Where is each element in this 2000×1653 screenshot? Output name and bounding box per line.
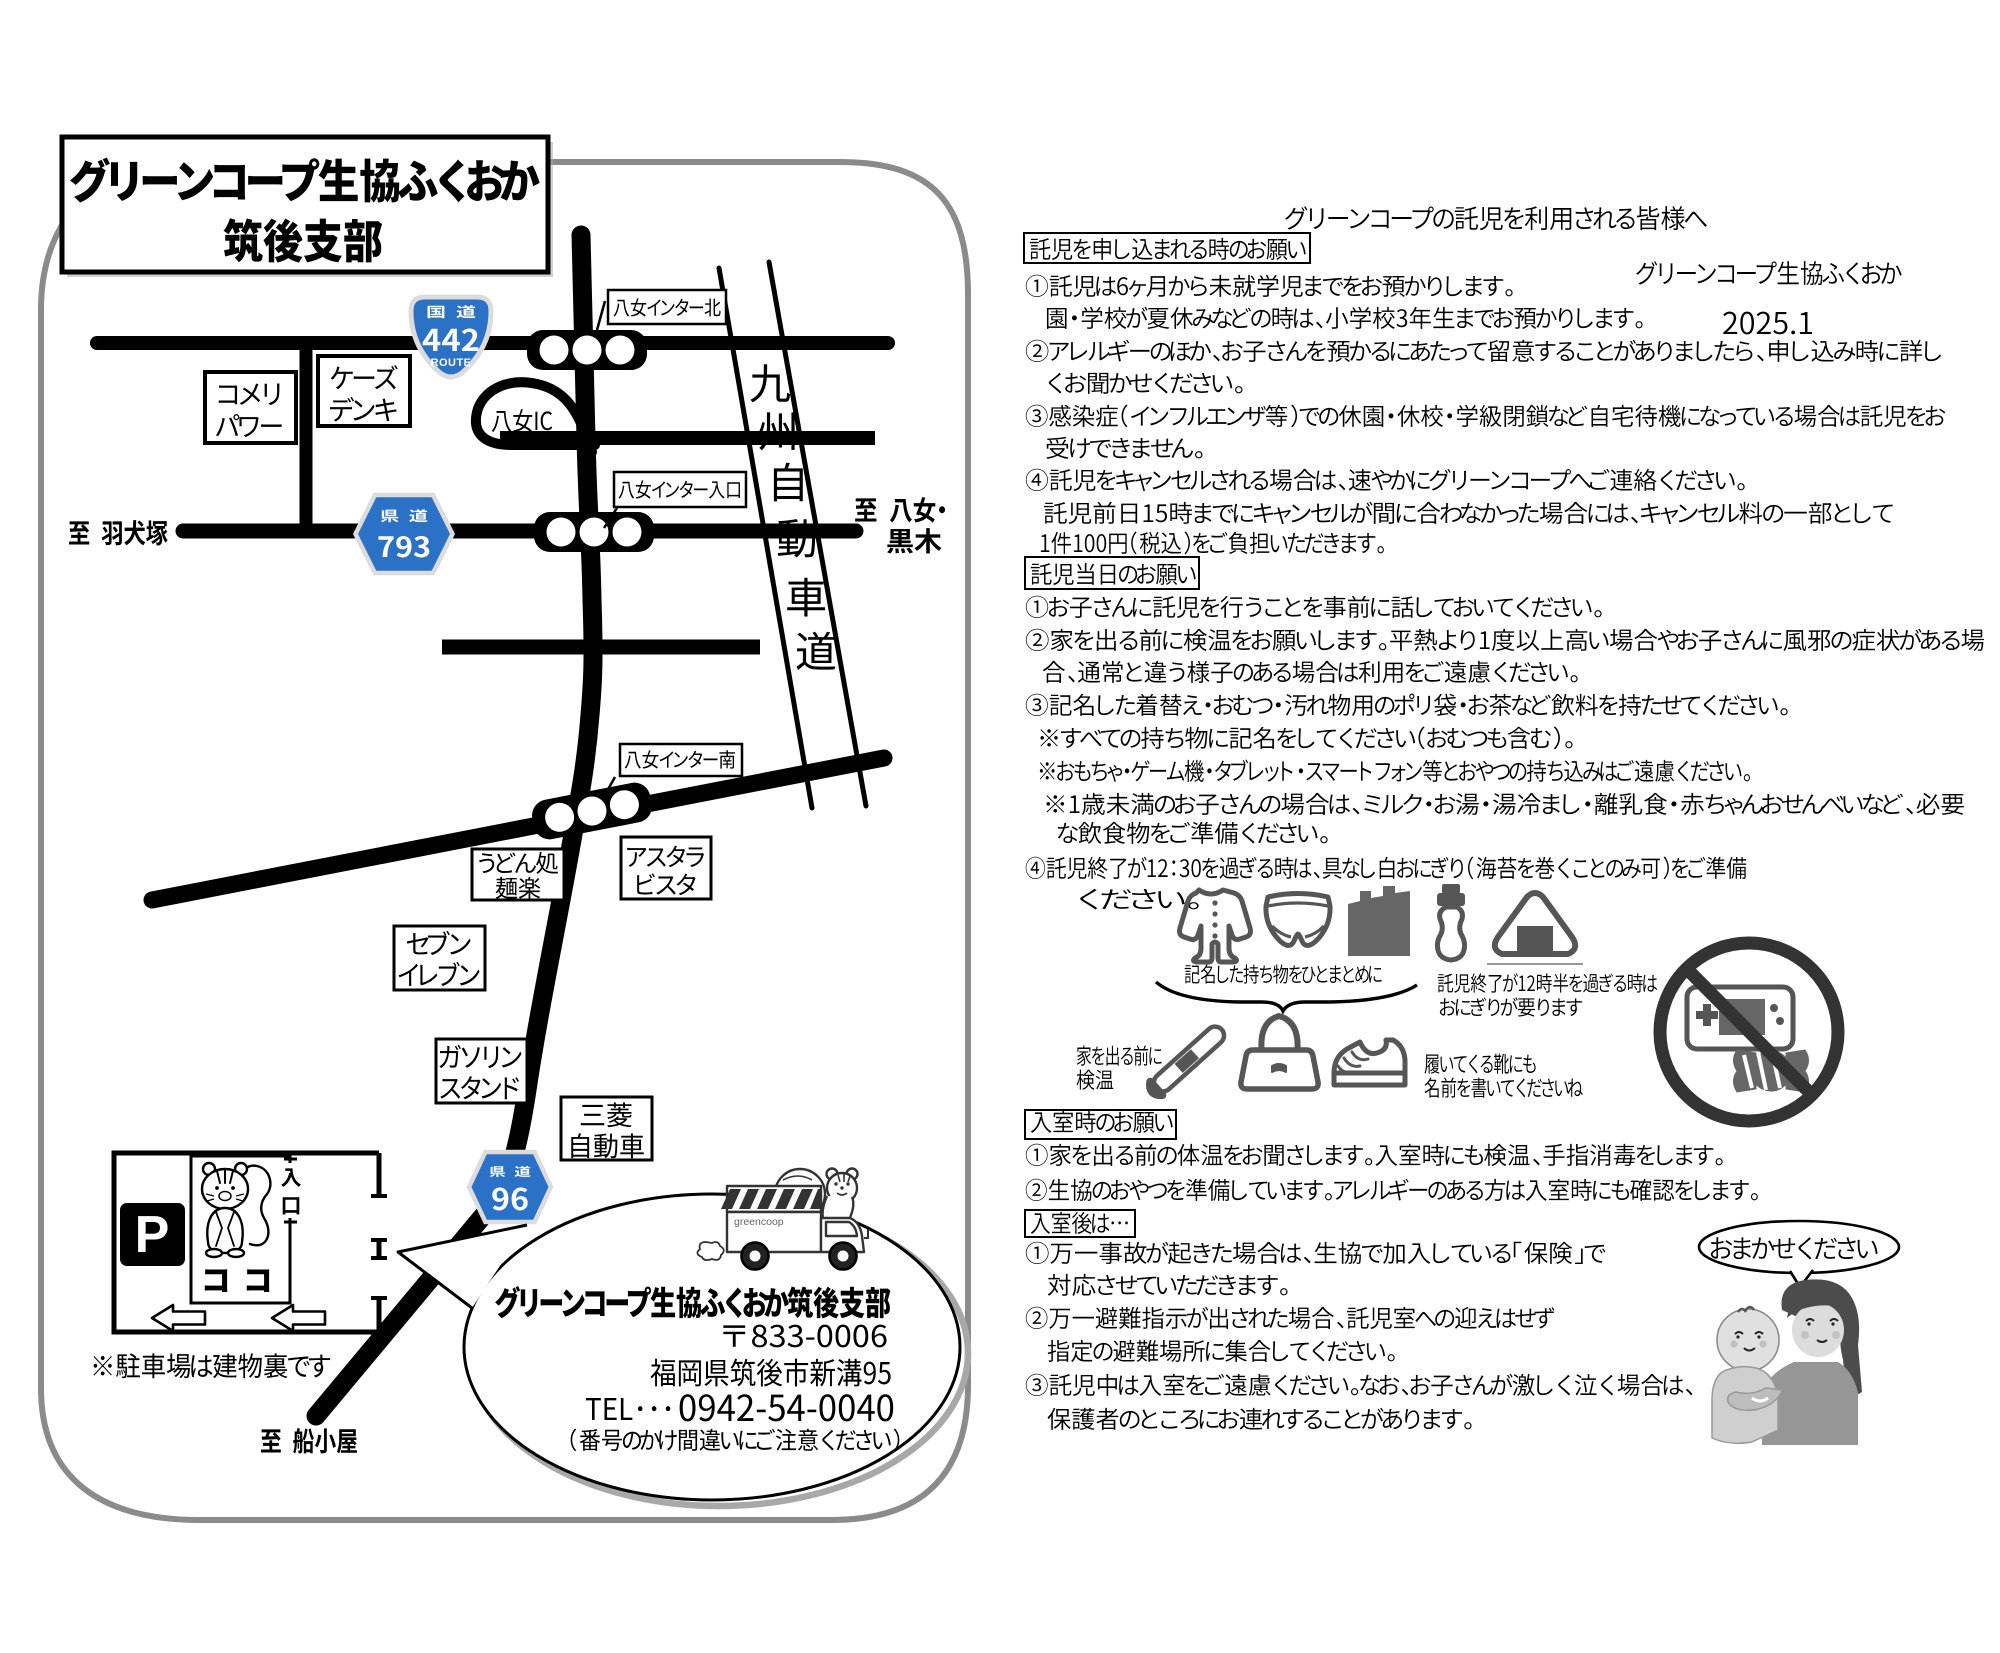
svg-text:greencoop: greencoop (734, 1216, 784, 1228)
svg-text:ROUTE: ROUTE (431, 357, 472, 369)
svg-text:P: P (135, 1206, 170, 1264)
